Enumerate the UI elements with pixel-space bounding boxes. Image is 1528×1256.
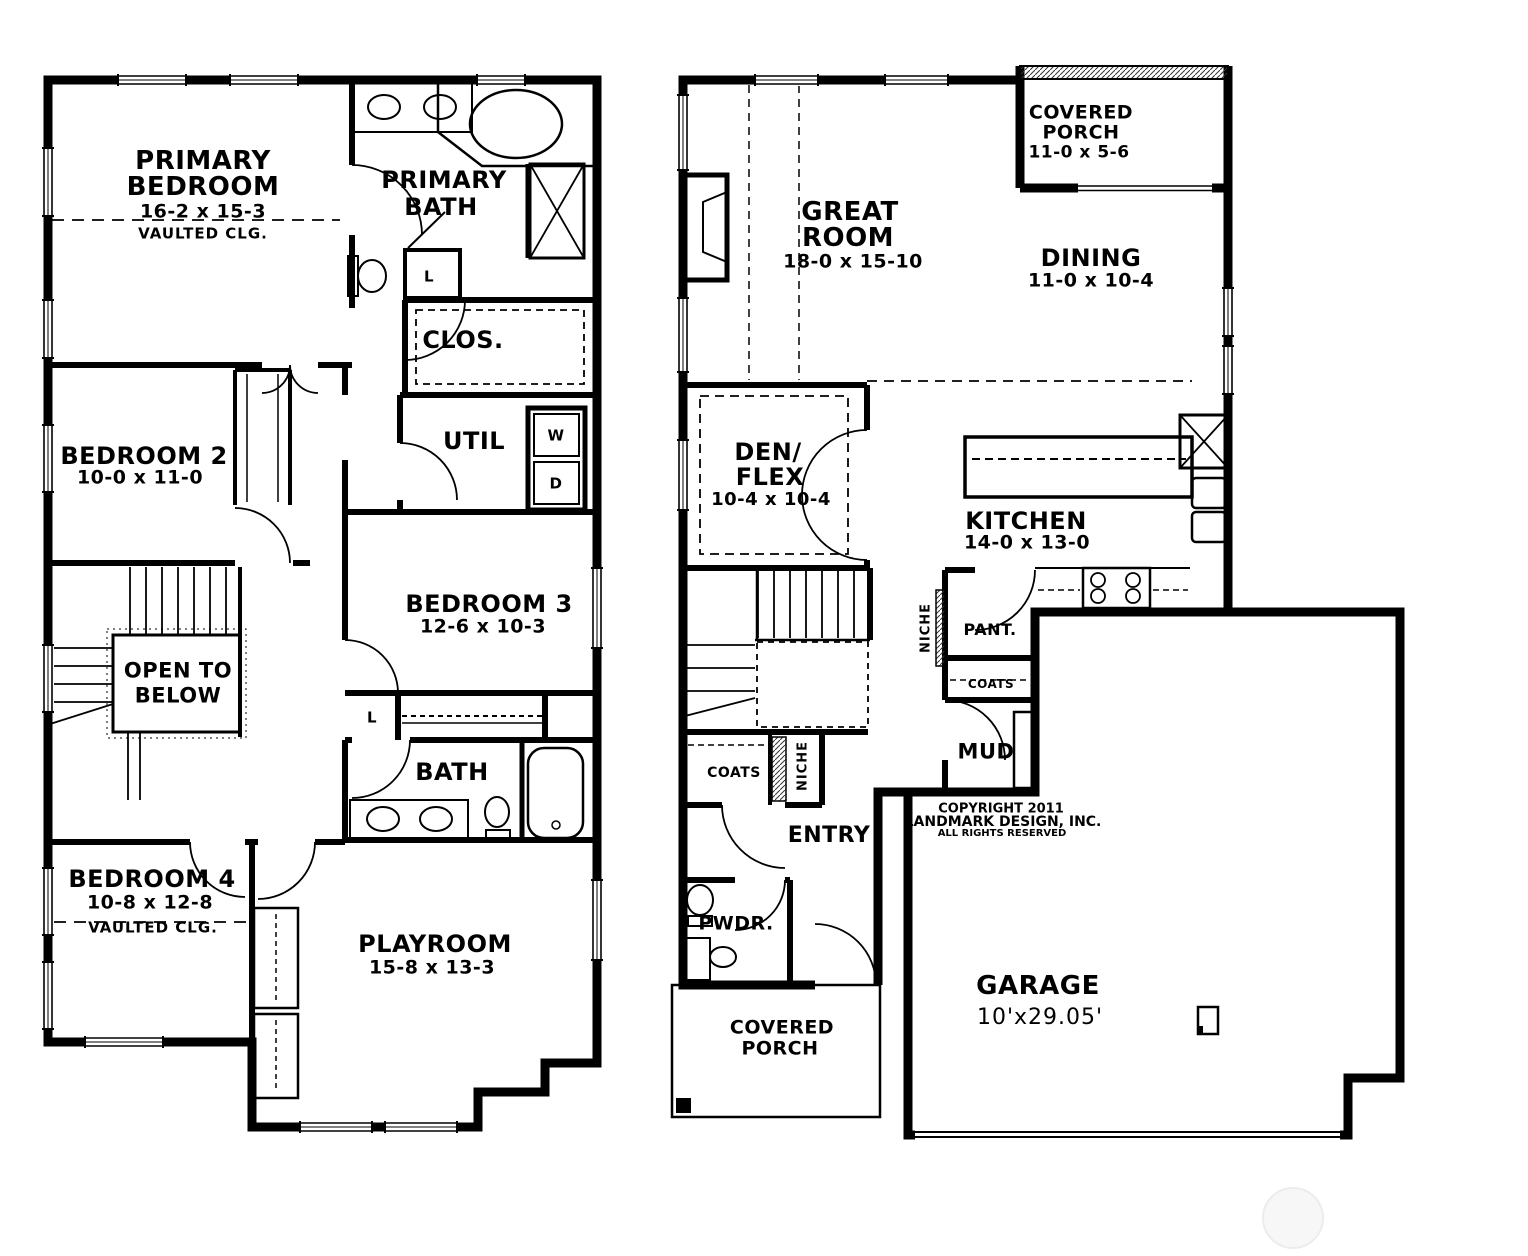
powder-label: PWDR. <box>698 915 773 934</box>
bath-label: BATH <box>415 760 488 784</box>
dining-dims: 11-0 x 10-4 <box>1028 272 1154 291</box>
kitchen-niche-label: NICHE <box>920 603 933 653</box>
bedroom3-label: BEDROOM 3 <box>405 592 572 616</box>
util-label: UTIL <box>443 429 505 453</box>
entry-coats-label: COATS <box>707 766 761 780</box>
main-floor-porch-roof <box>1020 66 1228 79</box>
floor-plan: PRIMARY BEDROOM 16-2 x 15-3 VAULTED CLG.… <box>0 0 1528 1256</box>
kitchen-label: KITCHEN <box>965 509 1087 533</box>
den-flex-label-2: FLEX <box>736 465 805 489</box>
front-porch-label-2: PORCH <box>741 1040 818 1059</box>
kitchen-dims: 14-0 x 13-0 <box>964 534 1090 553</box>
dining-label: DINING <box>1041 246 1142 270</box>
rear-porch-label-2: PORCH <box>1042 124 1119 143</box>
den-flex-label: DEN/ <box>734 440 801 464</box>
garage-label: GARAGE <box>976 973 1100 999</box>
bedroom4-label: BEDROOM 4 <box>68 867 235 891</box>
upper-floor-dashed-lines <box>52 220 340 922</box>
closet-label: CLOS. <box>422 328 503 352</box>
dryer-label: D <box>550 477 563 492</box>
primary-bath-label-2: BATH <box>404 195 477 219</box>
watermark-circle <box>1262 1187 1324 1249</box>
copyright-line-3: ALL RIGHTS RESERVED <box>938 829 1067 839</box>
primary-bedroom-label: PRIMARY <box>135 148 271 174</box>
garage-dims: 10'x29.05' <box>977 1007 1103 1029</box>
rear-porch-label: COVERED <box>1029 104 1133 123</box>
den-flex-dims: 10-4 x 10-4 <box>711 491 831 509</box>
great-room-label-2: ROOM <box>802 225 894 251</box>
entry-niche-label: NICHE <box>797 741 810 791</box>
playroom-dims: 15-8 x 13-3 <box>369 959 495 978</box>
rear-porch-dims: 11-0 x 5-6 <box>1028 145 1129 162</box>
open-to-below-label-2: BELOW <box>135 686 222 707</box>
bedroom2-label: BEDROOM 2 <box>60 444 227 468</box>
primary-bedroom-dims: 16-2 x 15-3 <box>140 203 266 222</box>
bedroom2-dims: 10-0 x 11-0 <box>77 469 203 488</box>
bedroom4-dims: 10-8 x 12-8 <box>87 894 213 913</box>
great-room-dims: 18-0 x 15-10 <box>783 253 923 272</box>
linen-hall-label: L <box>367 711 377 726</box>
mud-label: MUD <box>958 742 1015 763</box>
playroom-label: PLAYROOM <box>358 932 512 956</box>
front-porch-label: COVERED <box>730 1019 834 1038</box>
pantry-label: PANT. <box>963 622 1016 638</box>
primary-bedroom-ceiling: VAULTED CLG. <box>138 227 268 242</box>
bedroom4-ceiling: VAULTED CLG. <box>88 921 218 936</box>
washer-label: W <box>547 429 564 444</box>
open-to-below-label: OPEN TO <box>124 661 232 682</box>
linen-primary-label: L <box>424 270 434 285</box>
primary-bath-label: PRIMARY <box>381 168 507 192</box>
entry-label: ENTRY <box>788 825 871 847</box>
copyright-line-2: LANDMARK DESIGN, INC. <box>905 815 1102 829</box>
main-floor-stairs <box>685 571 870 727</box>
great-room-label: GREAT <box>801 199 898 225</box>
primary-bedroom-label-2: BEDROOM <box>127 174 280 200</box>
bedroom3-dims: 12-6 x 10-3 <box>420 618 546 637</box>
kitchen-coats-label: COATS <box>968 678 1014 690</box>
main-floor-fixtures <box>672 175 1228 1117</box>
